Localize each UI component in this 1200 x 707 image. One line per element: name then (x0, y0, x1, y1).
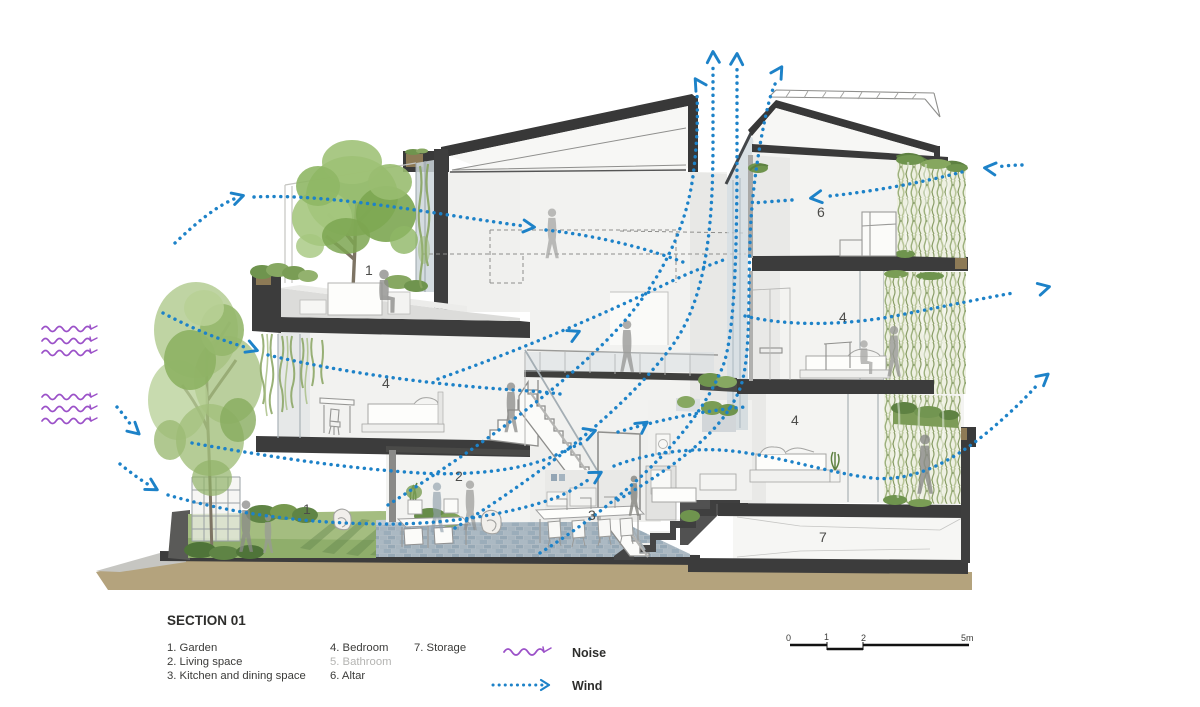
svg-text:2: 2 (455, 468, 463, 484)
svg-text:7: 7 (819, 529, 827, 545)
svg-text:SECTION 01: SECTION 01 (167, 613, 246, 628)
svg-text:Wind: Wind (572, 679, 602, 693)
svg-text:2: 2 (861, 633, 866, 643)
svg-text:1: 1 (365, 262, 373, 278)
svg-text:0: 0 (786, 633, 791, 643)
svg-text:4. Bedroom: 4. Bedroom (330, 642, 388, 654)
svg-text:3: 3 (588, 507, 596, 523)
svg-text:1: 1 (303, 501, 311, 517)
svg-text:4: 4 (791, 412, 799, 428)
svg-text:1: 1 (824, 632, 829, 642)
svg-text:4: 4 (839, 309, 847, 325)
svg-text:6: 6 (817, 204, 825, 220)
svg-text:1. Garden: 1. Garden (167, 642, 217, 654)
svg-text:5. Bathroom: 5. Bathroom (330, 656, 392, 668)
svg-text:6. Altar: 6. Altar (330, 670, 365, 682)
svg-text:5m: 5m (961, 633, 974, 643)
svg-text:2. Living space: 2. Living space (167, 656, 242, 668)
svg-text:7. Storage: 7. Storage (414, 642, 466, 654)
svg-text:Noise: Noise (572, 646, 606, 660)
svg-text:3. Kitchen and dining space: 3. Kitchen and dining space (167, 670, 306, 682)
svg-text:4: 4 (382, 375, 390, 391)
